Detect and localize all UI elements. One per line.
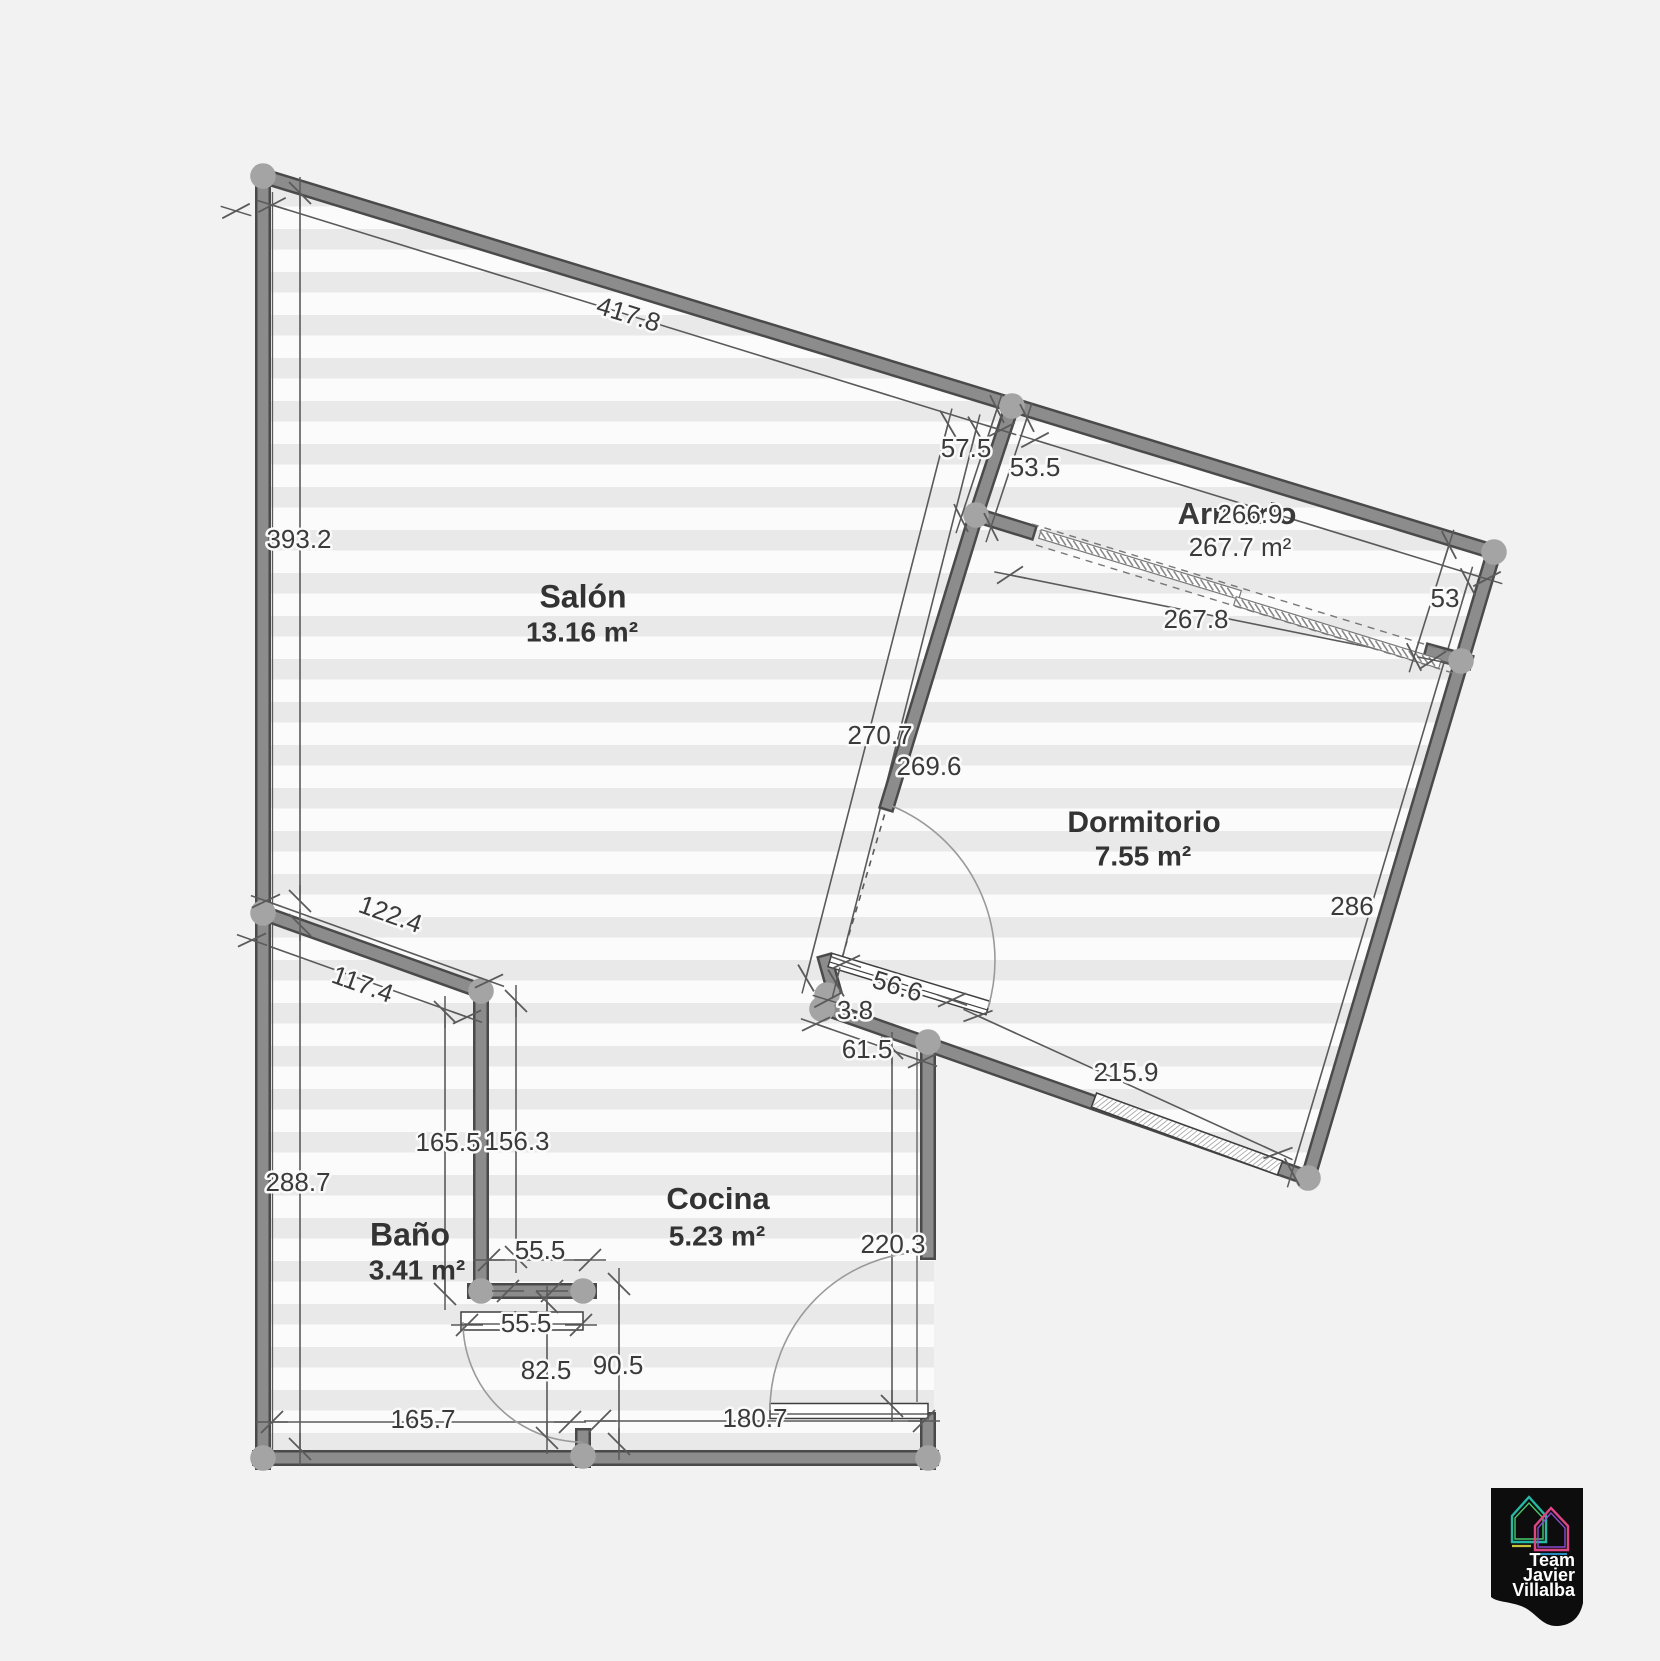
svg-text:61.5: 61.5 (842, 1034, 893, 1064)
svg-text:55.5: 55.5 (515, 1235, 566, 1265)
svg-text:Salón: Salón (539, 578, 626, 614)
svg-text:165.7: 165.7 (390, 1404, 455, 1434)
svg-text:266.9: 266.9 (1217, 499, 1282, 529)
svg-text:267.8: 267.8 (1163, 604, 1228, 634)
svg-text:Villalba: Villalba (1512, 1580, 1576, 1600)
svg-text:3.8: 3.8 (837, 995, 873, 1025)
svg-text:215.9: 215.9 (1093, 1057, 1158, 1087)
svg-text:82.5: 82.5 (521, 1355, 572, 1385)
svg-text:180.7: 180.7 (722, 1403, 787, 1433)
svg-text:13.16 m²: 13.16 m² (526, 616, 638, 647)
svg-text:Dormitorio: Dormitorio (1067, 806, 1220, 839)
svg-text:3.41 m²: 3.41 m² (369, 1254, 466, 1285)
svg-text:267.7 m²: 267.7 m² (1189, 532, 1292, 562)
svg-text:5.23 m²: 5.23 m² (669, 1220, 766, 1251)
svg-text:55.5: 55.5 (501, 1308, 552, 1338)
svg-text:269.6: 269.6 (896, 751, 961, 781)
svg-text:53: 53 (1431, 583, 1460, 613)
svg-text:7.55 m²: 7.55 m² (1095, 840, 1192, 871)
svg-text:288.7: 288.7 (265, 1167, 330, 1197)
svg-text:156.3: 156.3 (484, 1126, 549, 1156)
svg-text:220.3: 220.3 (860, 1229, 925, 1259)
svg-text:270.7: 270.7 (847, 720, 912, 750)
svg-text:57.5: 57.5 (941, 433, 992, 463)
svg-text:286: 286 (1330, 891, 1373, 921)
svg-text:53.5: 53.5 (1010, 452, 1061, 482)
svg-text:90.5: 90.5 (593, 1350, 644, 1380)
svg-text:393.2: 393.2 (266, 524, 331, 554)
svg-text:165.5: 165.5 (415, 1127, 480, 1157)
svg-text:Baño: Baño (370, 1216, 450, 1252)
svg-text:Cocina: Cocina (666, 1181, 770, 1216)
